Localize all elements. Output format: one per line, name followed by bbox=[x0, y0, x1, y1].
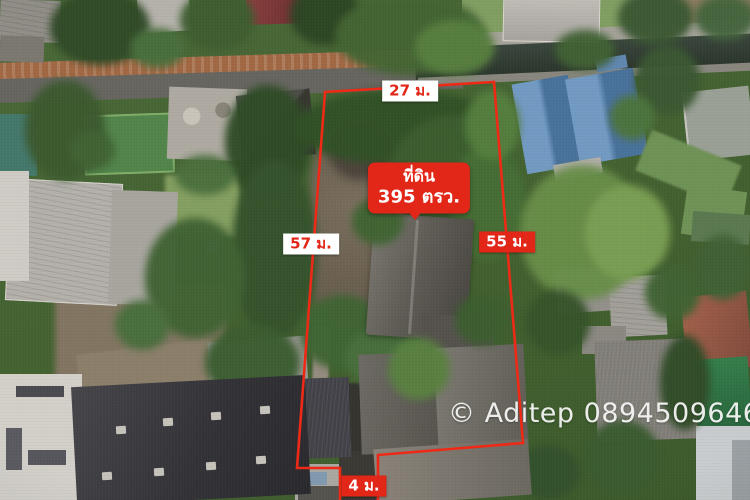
plot-area: 395 ตรว. bbox=[378, 187, 460, 209]
dimension-label-left: 57 ม. bbox=[283, 234, 339, 255]
watermark: © Aditep 0894509646 bbox=[448, 398, 750, 429]
dimension-label-top: 27 ม. bbox=[382, 81, 438, 102]
aerial-land-listing-photo: 27 ม. 57 ม. 55 ม. 4 ม. ที่ดิน 395 ตรว. ©… bbox=[0, 0, 750, 500]
plot-area-bubble: ที่ดิน 395 ตรว. bbox=[368, 163, 470, 214]
boundary-line bbox=[297, 82, 523, 500]
dimension-label-right: 55 ม. bbox=[479, 232, 535, 253]
dimension-label-access: 4 ม. bbox=[341, 476, 386, 497]
plot-title: ที่ดิน bbox=[378, 167, 460, 187]
bubble-tail bbox=[406, 209, 424, 220]
